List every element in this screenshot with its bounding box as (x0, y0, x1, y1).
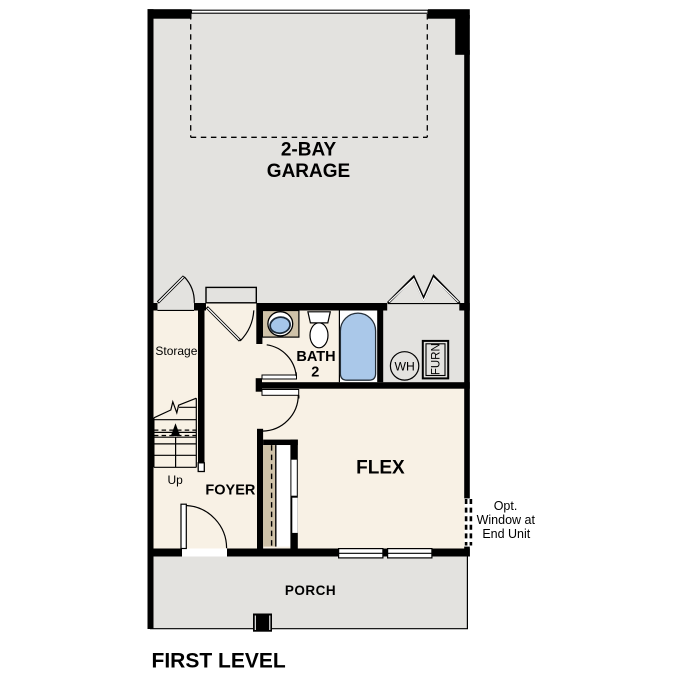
svg-text:PORCH: PORCH (285, 583, 336, 598)
svg-text:FLEX: FLEX (356, 458, 405, 479)
svg-text:Up: Up (168, 473, 184, 487)
svg-text:FIRST LEVEL: FIRST LEVEL (152, 649, 286, 672)
svg-text:GARAGE: GARAGE (267, 161, 350, 182)
svg-text:BATH: BATH (296, 349, 335, 365)
svg-text:WH: WH (394, 359, 414, 373)
svg-text:FOYER: FOYER (205, 482, 255, 498)
svg-text:2: 2 (311, 365, 319, 381)
svg-text:2-BAY: 2-BAY (281, 140, 337, 161)
svg-text:FURN: FURN (430, 343, 442, 375)
svg-text:Opt.: Opt. (494, 499, 518, 513)
svg-text:Storage: Storage (155, 344, 197, 358)
svg-text:End Unit: End Unit (482, 527, 530, 541)
svg-text:Window at: Window at (477, 513, 536, 527)
